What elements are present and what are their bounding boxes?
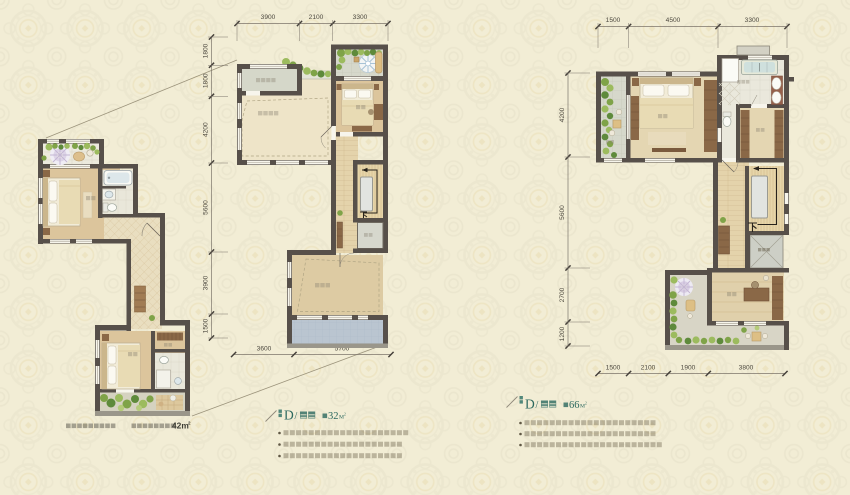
svg-text:D: D	[525, 397, 535, 412]
svg-text:66: 66	[569, 400, 580, 411]
svg-text:2100: 2100	[641, 365, 656, 372]
svg-text:1800: 1800	[203, 73, 210, 88]
svg-text:1800: 1800	[203, 43, 210, 58]
svg-text:4200: 4200	[203, 122, 210, 137]
svg-text:3900: 3900	[203, 275, 210, 290]
svg-text:1200: 1200	[559, 326, 566, 341]
svg-text:2: 2	[344, 413, 346, 417]
svg-text:3300: 3300	[745, 17, 760, 24]
svg-text:3800: 3800	[739, 365, 754, 372]
svg-text:3900: 3900	[261, 14, 276, 21]
svg-text:2: 2	[585, 402, 587, 406]
svg-text:42m: 42m	[172, 421, 189, 431]
svg-text:3300: 3300	[353, 14, 368, 21]
svg-text:2100: 2100	[309, 14, 324, 21]
svg-text:2: 2	[188, 421, 191, 426]
svg-text:3600: 3600	[257, 346, 272, 353]
svg-text:2700: 2700	[559, 287, 566, 302]
svg-text:32: 32	[328, 411, 339, 422]
svg-text:1900: 1900	[681, 365, 696, 372]
svg-text:/: /	[295, 411, 298, 422]
svg-text:1500: 1500	[606, 17, 621, 24]
svg-text:4500: 4500	[666, 17, 681, 24]
svg-text:1500: 1500	[606, 365, 621, 372]
svg-text:D: D	[284, 408, 294, 423]
svg-text:5600: 5600	[559, 205, 566, 220]
svg-text:1500: 1500	[203, 318, 210, 333]
svg-text:5600: 5600	[203, 200, 210, 215]
svg-text:4200: 4200	[559, 107, 566, 122]
svg-text:/: /	[536, 400, 539, 411]
